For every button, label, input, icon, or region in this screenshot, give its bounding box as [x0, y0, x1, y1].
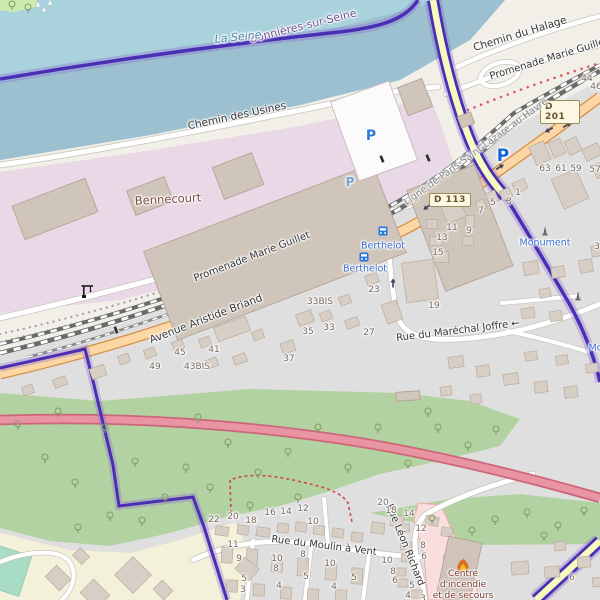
house-number: 19 — [428, 301, 439, 311]
house-number: 6 — [569, 573, 575, 583]
house-number: 15 — [432, 248, 443, 258]
building — [307, 589, 319, 600]
building — [441, 527, 453, 538]
house-number: 5 — [351, 573, 357, 583]
house-number: 45 — [174, 348, 185, 358]
building — [551, 265, 566, 278]
building — [440, 386, 452, 396]
building — [463, 237, 474, 246]
house-number: 3 — [420, 594, 426, 600]
house-number: 16 — [264, 508, 275, 518]
poi-label: Monument — [520, 238, 571, 249]
house-number: 61 — [555, 164, 566, 174]
building — [578, 258, 593, 273]
building — [226, 580, 238, 593]
house-number: 35 — [302, 327, 313, 337]
house-number: 3 — [240, 585, 246, 595]
building — [277, 523, 289, 533]
building — [396, 568, 406, 576]
house-number: 49 — [149, 362, 160, 372]
house-number: 41 — [208, 345, 219, 355]
house-number: 37 — [283, 354, 294, 364]
fire-station-label: Centre — [448, 569, 478, 579]
house-number: 13 — [436, 233, 447, 243]
building — [521, 307, 535, 319]
house-number: 6 — [392, 576, 398, 586]
house-number: 11 — [446, 223, 457, 233]
building — [253, 584, 265, 597]
building — [577, 556, 591, 568]
house-number: 20 — [227, 512, 238, 522]
house-number: 18 — [245, 516, 256, 526]
building — [332, 528, 344, 538]
house-number: 14 — [403, 509, 414, 519]
house-number: 3 — [506, 197, 512, 207]
house-number: 9 — [466, 226, 472, 236]
house-number: 11 — [227, 540, 238, 550]
house-number: 10 — [271, 554, 282, 564]
fire-station-label: d'incendie — [440, 580, 486, 590]
house-number: 8 — [300, 550, 306, 560]
house-number: 12 — [415, 524, 426, 534]
building — [549, 310, 562, 322]
building — [592, 577, 600, 587]
building — [396, 391, 421, 402]
building — [351, 532, 363, 542]
house-number: 14 — [280, 507, 291, 517]
building — [554, 541, 566, 551]
building — [522, 260, 539, 275]
building — [470, 394, 482, 404]
house-number: 33BIS — [307, 297, 333, 307]
building — [371, 522, 385, 535]
building — [466, 216, 475, 227]
house-number: 59 — [570, 164, 581, 174]
building — [398, 579, 408, 587]
house-number: 63 — [539, 164, 550, 174]
house-number: 5 — [409, 581, 415, 591]
house-number: 23 — [368, 285, 379, 295]
building — [544, 566, 560, 578]
building — [539, 288, 551, 299]
house-number: 1 — [515, 188, 521, 198]
house-number: 33 — [323, 323, 334, 333]
building — [511, 561, 529, 575]
building — [256, 527, 270, 538]
map-canvas[interactable]: D 113 D 201 Chemin des UsinesChemin du H… — [0, 0, 600, 600]
building — [534, 381, 548, 394]
bus-icon — [360, 253, 369, 262]
poi-label: Berthelot — [343, 264, 387, 275]
building — [401, 259, 438, 303]
house-number: 8 — [420, 541, 426, 551]
fire-station-label: et de secours — [433, 591, 494, 600]
building — [555, 355, 568, 366]
building — [448, 356, 464, 369]
house-number: 4 — [331, 582, 337, 592]
house-number: 10 — [381, 556, 392, 566]
house-number: 22 — [208, 515, 219, 525]
parking-icon: P — [346, 175, 355, 189]
bus-icon — [379, 227, 388, 236]
building — [215, 526, 229, 537]
building — [295, 522, 307, 532]
house-number: 5 — [241, 574, 247, 584]
house-number: 4 — [276, 581, 282, 591]
house-number: 4 — [405, 591, 411, 600]
road-shield-d113: D 113 — [429, 193, 471, 207]
poi-label: Berthelot — [361, 241, 405, 252]
building — [524, 351, 537, 362]
house-number: 9 — [236, 554, 242, 564]
building — [476, 365, 490, 378]
house-number: 8 — [273, 564, 279, 574]
house-number: 46 — [590, 82, 600, 92]
building — [427, 220, 438, 229]
house-number: 6 — [421, 552, 427, 562]
house-number: 7 — [478, 206, 484, 216]
parking-icon: P — [497, 146, 509, 166]
house-number: 10 — [307, 517, 318, 527]
house-number: 43BIS — [184, 362, 210, 372]
house-number: 18 — [385, 506, 396, 516]
building — [585, 363, 598, 374]
house-number: 3 — [594, 242, 600, 252]
building — [503, 373, 519, 386]
parking-icon: P — [366, 128, 376, 144]
house-number: 10 — [324, 559, 335, 569]
building — [237, 525, 249, 535]
house-number: 57 — [589, 165, 600, 175]
building — [564, 386, 578, 399]
house-number: 5 — [303, 572, 309, 582]
poi-label: Monument — [589, 343, 600, 354]
house-number: 5 — [490, 198, 496, 208]
house-number: 12 — [297, 504, 308, 514]
house-number: 27 — [363, 328, 374, 338]
